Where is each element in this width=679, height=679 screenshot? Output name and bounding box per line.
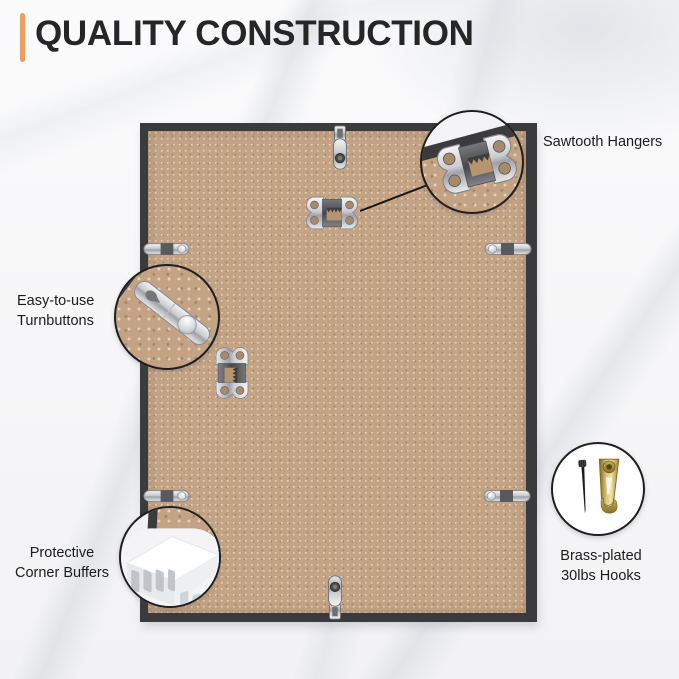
callout-circle-turnbuttons <box>114 264 220 370</box>
callout-label-line: Brass-plated <box>546 546 656 566</box>
corner-buffer-zoom-icon <box>121 512 221 608</box>
retainer-clip-icon <box>324 574 346 620</box>
retainer-clip-icon <box>329 125 351 171</box>
callout-label-line: Protective <box>6 543 118 563</box>
sawtooth-hanger-icon <box>215 346 249 400</box>
title-accent-bar <box>20 13 25 62</box>
turnbutton-icon <box>484 240 532 258</box>
turnbutton-icon <box>143 240 190 258</box>
nail-and-brass-hook-icon <box>565 448 635 532</box>
callout-circle-sawtooth <box>420 110 524 214</box>
callout-circle-hooks <box>551 442 645 536</box>
callout-circle-corner-buffers <box>119 506 221 608</box>
sawtooth-hanger-icon <box>305 196 359 230</box>
callout-label-hooks: Brass-plated 30lbs Hooks <box>546 546 656 586</box>
callout-label-line: Easy-to-use <box>17 291 94 311</box>
callout-label-sawtooth: Sawtooth Hangers <box>543 132 662 152</box>
callout-label-line: Corner Buffers <box>6 563 118 583</box>
callout-label-line: 30lbs Hooks <box>546 566 656 586</box>
callout-label-corner-buffers: Protective Corner Buffers <box>6 543 118 583</box>
turnbutton-icon <box>483 487 531 505</box>
callout-label-turnbuttons: Easy-to-use Turnbuttons <box>17 291 94 331</box>
callout-label-line: Turnbuttons <box>17 311 94 331</box>
turnbutton-icon <box>143 487 190 505</box>
page-title: QUALITY CONSTRUCTION <box>35 14 474 54</box>
